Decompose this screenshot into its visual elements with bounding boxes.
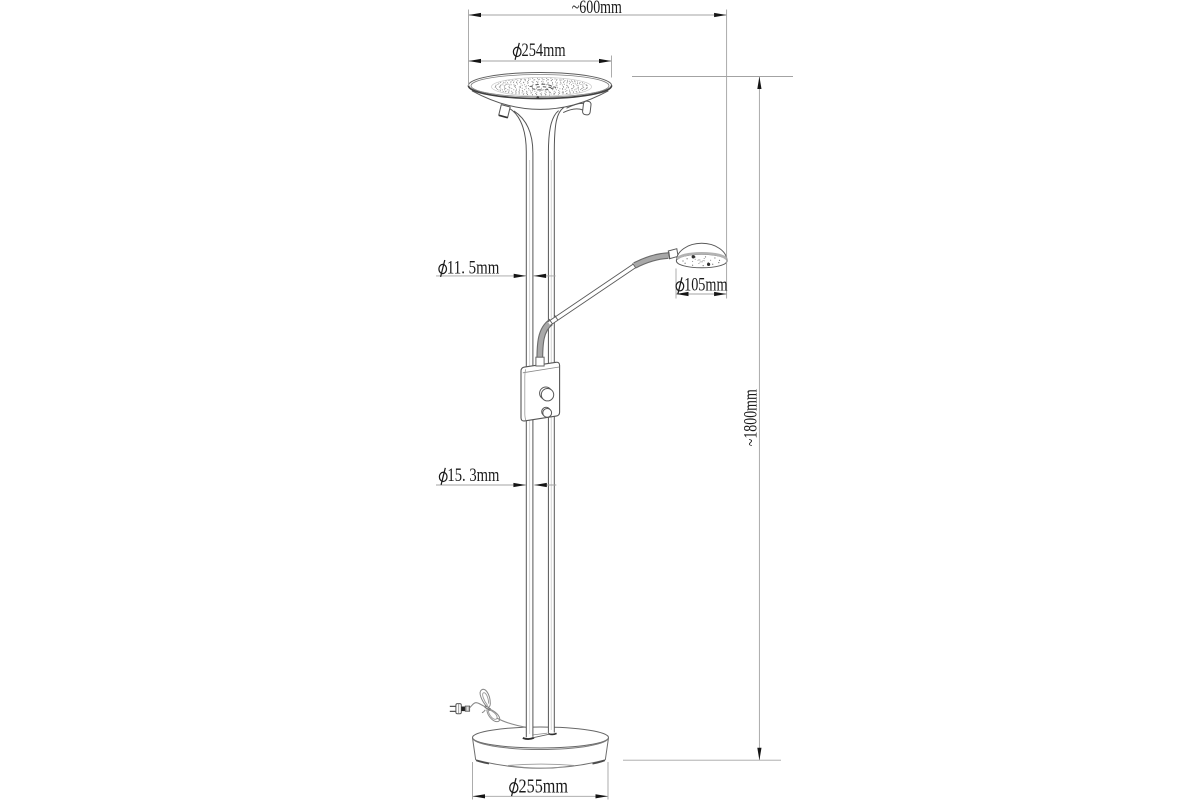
svg-text:~600mm: ~600mm [572, 0, 622, 18]
svg-text:255mm: 255mm [519, 775, 569, 797]
svg-text:254mm: 254mm [522, 40, 566, 61]
svg-text:15. 3mm: 15. 3mm [447, 465, 499, 486]
svg-text:105mm: 105mm [684, 275, 728, 296]
svg-text:~1800mm: ~1800mm [741, 389, 761, 446]
svg-text:11. 5mm: 11. 5mm [447, 257, 500, 278]
